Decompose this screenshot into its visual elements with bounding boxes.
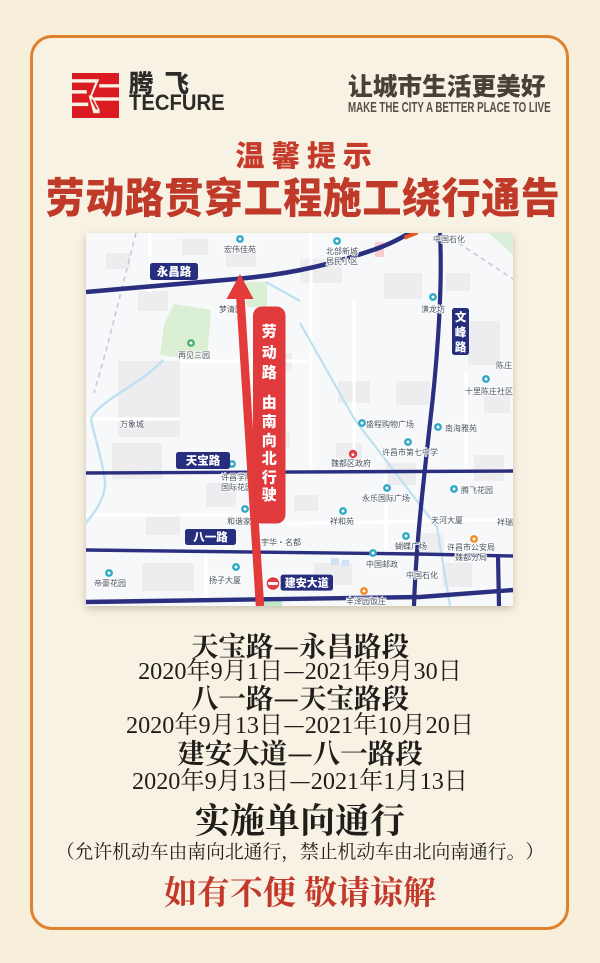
svg-text:潢龙坊: 潢龙坊 — [421, 304, 445, 315]
svg-text:峰: 峰 — [455, 324, 467, 340]
svg-text:蝴蝶广场: 蝴蝶广场 — [395, 541, 427, 552]
svg-text:驶: 驶 — [262, 483, 277, 504]
svg-text:北: 北 — [262, 447, 277, 468]
svg-text:扬子大厦: 扬子大厦 — [209, 575, 241, 586]
svg-text:陈庄: 陈庄 — [496, 360, 512, 371]
svg-text:文: 文 — [455, 309, 467, 325]
svg-text:祥和苑: 祥和苑 — [330, 516, 354, 527]
svg-text:劳: 劳 — [262, 320, 277, 341]
svg-text:中国石化: 中国石化 — [433, 234, 465, 245]
svg-text:路: 路 — [455, 339, 467, 355]
svg-text:再见三园: 再见三园 — [178, 350, 210, 361]
svg-text:永昌路: 永昌路 — [157, 264, 192, 280]
svg-text:魏都区政府: 魏都区政府 — [331, 458, 371, 469]
svg-text:路: 路 — [262, 361, 277, 382]
svg-text:万象城: 万象城 — [120, 419, 144, 430]
svg-text:动: 动 — [262, 341, 277, 362]
svg-text:帝豪花园: 帝豪花园 — [94, 578, 126, 589]
svg-text:永乐国际广场: 永乐国际广场 — [362, 493, 410, 504]
svg-text:南: 南 — [262, 410, 277, 431]
svg-text:天宝路: 天宝路 — [186, 453, 221, 469]
svg-text:中国邮政: 中国邮政 — [366, 559, 398, 570]
svg-text:宏伟佳苑: 宏伟佳苑 — [224, 244, 256, 255]
svg-text:天河大厦: 天河大厦 — [431, 515, 463, 526]
svg-text:南海雅苑: 南海雅苑 — [445, 423, 477, 434]
svg-text:魏都分局: 魏都分局 — [455, 552, 487, 563]
svg-text:丰泽园饭庄: 丰泽园饭庄 — [346, 596, 386, 606]
svg-text:八一路: 八一路 — [193, 529, 228, 545]
svg-text:建安大道: 建安大道 — [285, 575, 329, 591]
svg-text:宇华·名都: 宇华·名都 — [261, 537, 301, 548]
svg-text:居民小区: 居民小区 — [326, 256, 358, 267]
svg-text:腾飞花园: 腾飞花园 — [461, 485, 493, 496]
svg-text:十里陈庄社区: 十里陈庄社区 — [465, 386, 513, 397]
svg-text:由: 由 — [262, 391, 277, 412]
svg-text:中国石化: 中国石化 — [406, 570, 438, 581]
svg-text:盛程购物广场: 盛程购物广场 — [366, 419, 414, 430]
svg-text:许昌市第七中学: 许昌市第七中学 — [382, 447, 438, 458]
svg-text:祥瑞: 祥瑞 — [497, 517, 513, 528]
